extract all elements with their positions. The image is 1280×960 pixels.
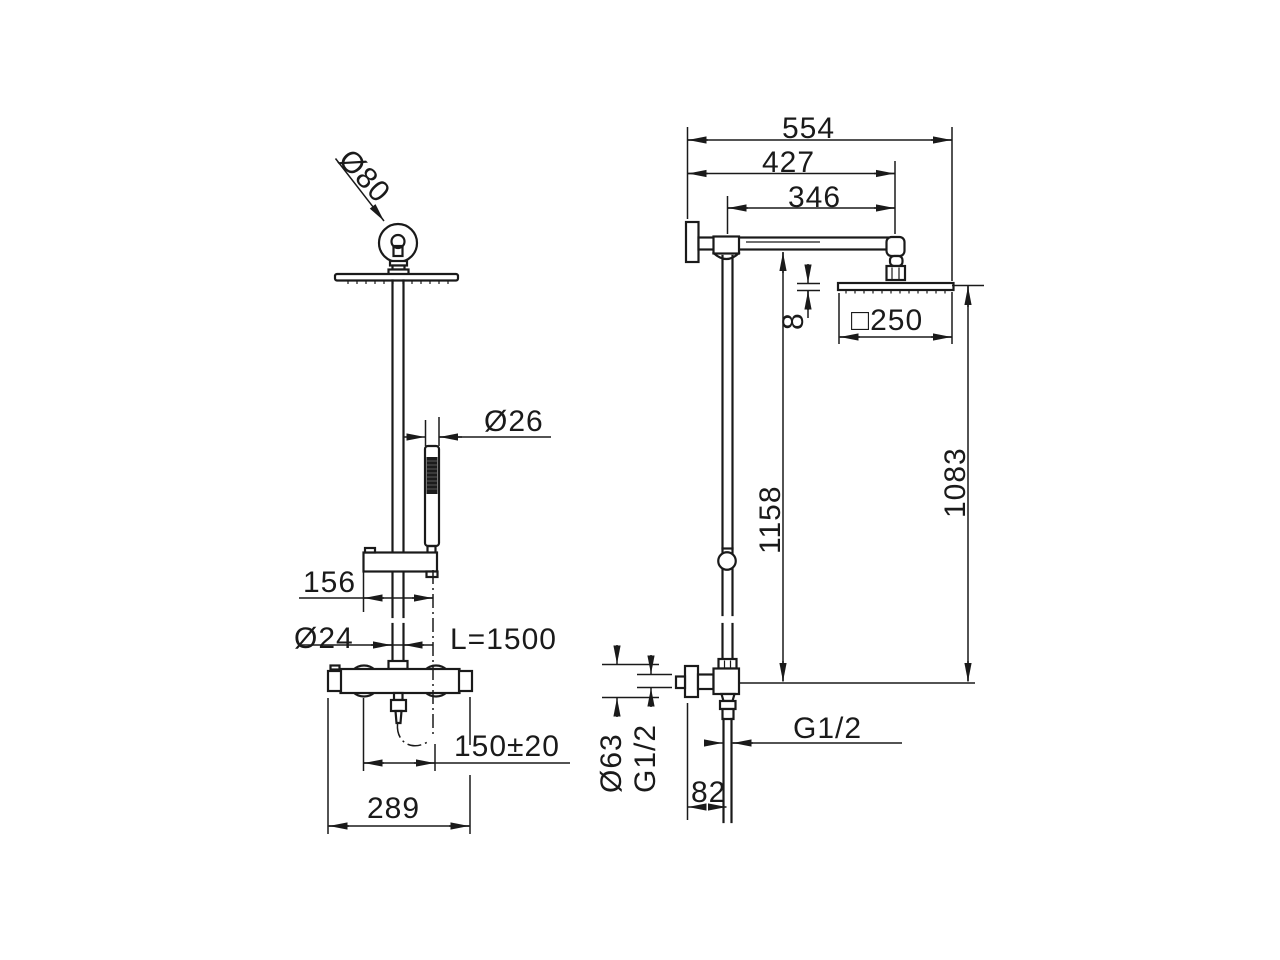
dim-label-dia80: Ø80: [332, 143, 397, 209]
dimension-arm-length: 346: [728, 181, 896, 234]
riser-pipe-front: [389, 281, 408, 670]
technical-drawing-canvas: Ø80 Ø26 156 Ø24 L=1500 150±20: [0, 0, 1280, 960]
dim-label-156: 156: [303, 566, 356, 599]
hand-shower: [425, 446, 439, 553]
dimension-ceiling-connection-dia: Ø80: [332, 143, 397, 221]
label-hose-length: L=1500: [450, 623, 557, 656]
dimension-hand-shower-dia: Ø26: [404, 405, 551, 446]
dim-label-sq250: □250: [851, 304, 923, 337]
dim-label-82: 82: [691, 776, 726, 809]
dimension-flange-thread: G1/2: [629, 655, 672, 793]
dimension-bracket-offset: 156: [299, 566, 433, 612]
dim-label-8: 8: [777, 312, 810, 330]
dim-label-dia24: Ø24: [294, 622, 354, 655]
hand-shower-handle: [427, 457, 438, 494]
overhead-shower-front: [335, 274, 458, 284]
dimension-head-size: □250: [839, 292, 952, 344]
wall-bracket-side: [686, 222, 699, 262]
dim-label-1158: 1158: [754, 485, 787, 554]
shower-column-drawing: Ø80 Ø26 156 Ø24 L=1500 150±20: [0, 0, 1280, 960]
flow-knob: [459, 671, 472, 691]
dim-label-427: 427: [762, 146, 815, 179]
dim-label-554: 554: [782, 112, 835, 145]
dim-label-289: 289: [367, 792, 420, 825]
arm-tee-joint: [714, 237, 740, 254]
dim-label-g12-outlet: G1/2: [793, 712, 862, 745]
dim-label-dia26: Ø26: [484, 405, 544, 438]
dimension-outlet-offset: 82: [688, 703, 727, 820]
ceiling-rose: [379, 224, 417, 275]
temperature-knob: [328, 671, 341, 691]
dimension-riser-pipe-dia: Ø24: [294, 622, 433, 655]
slider-bracket: [364, 548, 438, 577]
overhead-shower-side: [838, 283, 954, 294]
riser-pipe-side: [718, 256, 736, 669]
dim-label-g12-flange: G1/2: [629, 724, 662, 793]
thermostatic-valve-front: [328, 666, 472, 724]
dim-label-dia63: Ø63: [595, 733, 628, 793]
arm-elbow-side: [887, 237, 906, 280]
dim-label-1083: 1083: [939, 447, 972, 518]
shower-arm-side: [699, 237, 889, 260]
dimension-height-to-head: 1083: [939, 286, 984, 682]
slider-knob-side: [718, 552, 736, 570]
dim-label-346: 346: [788, 181, 841, 214]
